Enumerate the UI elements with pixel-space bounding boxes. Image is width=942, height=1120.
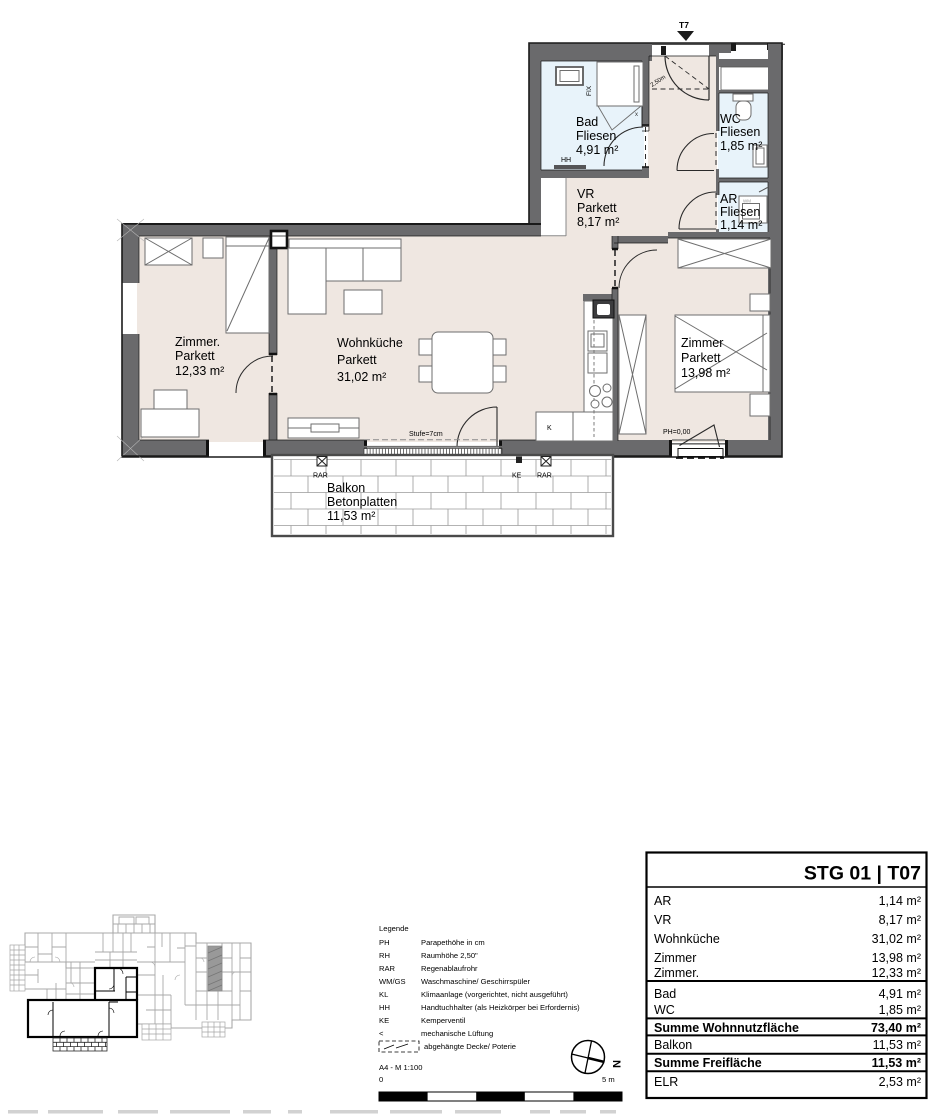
svg-text:1,14 m²: 1,14 m²	[720, 218, 762, 232]
svg-text:Summe Wohnnutzfläche: Summe Wohnnutzfläche	[654, 1021, 799, 1035]
svg-text:Balkon: Balkon	[654, 1038, 692, 1052]
svg-text:WC: WC	[720, 112, 741, 126]
svg-text:Fliesen: Fliesen	[720, 125, 760, 139]
svg-text:RAR: RAR	[537, 473, 552, 480]
svg-text:Wohnküche: Wohnküche	[337, 336, 403, 350]
svg-text:Raumhöhe 2,50": Raumhöhe 2,50"	[421, 951, 478, 960]
svg-text:Zimmer.: Zimmer.	[654, 966, 699, 980]
svg-text:Balkon: Balkon	[327, 481, 365, 495]
svg-text:RAR: RAR	[379, 964, 396, 973]
svg-text:Parkett: Parkett	[175, 349, 215, 363]
svg-text:Parkett: Parkett	[681, 351, 721, 365]
svg-text:73,40 m²: 73,40 m²	[871, 1021, 921, 1035]
svg-text:<: <	[379, 1029, 384, 1038]
svg-text:13,98 m²: 13,98 m²	[872, 951, 921, 965]
svg-text:Parkett: Parkett	[337, 353, 377, 367]
svg-text:RH: RH	[379, 951, 390, 960]
svg-text:N: N	[610, 1060, 622, 1068]
svg-text:KE: KE	[379, 1016, 389, 1025]
svg-text:WM: WM	[743, 199, 751, 204]
svg-text:PH: PH	[379, 938, 390, 947]
svg-text:AR: AR	[654, 894, 671, 908]
svg-text:Stufe=7cm: Stufe=7cm	[409, 431, 443, 438]
svg-text:AR: AR	[720, 192, 737, 206]
svg-text:Parkett: Parkett	[577, 201, 617, 215]
svg-text:8,17 m²: 8,17 m²	[577, 215, 619, 229]
svg-text:13,98 m²: 13,98 m²	[681, 366, 730, 380]
svg-text:Bad: Bad	[576, 115, 598, 129]
svg-text:0: 0	[379, 1075, 383, 1084]
svg-text:11,53 m²: 11,53 m²	[327, 509, 375, 523]
svg-text:FIX: FIX	[586, 85, 593, 96]
svg-text:RAR: RAR	[313, 473, 328, 480]
svg-text:KL: KL	[379, 990, 388, 999]
svg-text:Betonplatten: Betonplatten	[327, 495, 397, 509]
svg-text:Bad: Bad	[654, 987, 676, 1001]
svg-text:Fliesen: Fliesen	[576, 129, 616, 143]
svg-text:Zimmer: Zimmer	[681, 336, 723, 350]
svg-text:VR: VR	[577, 187, 594, 201]
svg-text:12,33 m²: 12,33 m²	[872, 966, 921, 980]
svg-text:Summe Freifläche: Summe Freifläche	[654, 1056, 762, 1070]
svg-text:Handtuchhalter (als Heizkörper: Handtuchhalter (als Heizkörper bei Erfor…	[421, 1003, 580, 1012]
svg-text:11,53 m²: 11,53 m²	[873, 1038, 921, 1052]
svg-text:Waschmaschine/ Geschirrspüler: Waschmaschine/ Geschirrspüler	[421, 977, 530, 986]
svg-text:HH: HH	[561, 157, 571, 164]
svg-text:WM/GS: WM/GS	[379, 977, 406, 986]
svg-text:mechanische Lüftung: mechanische Lüftung	[421, 1029, 493, 1038]
svg-text:Fliesen: Fliesen	[720, 205, 760, 219]
svg-text:WC: WC	[654, 1003, 675, 1017]
svg-text:Legende: Legende	[379, 924, 409, 933]
svg-text:Zimmer: Zimmer	[654, 951, 696, 965]
svg-text:31,02 m²: 31,02 m²	[337, 370, 386, 384]
svg-text:1,85 m²: 1,85 m²	[879, 1003, 921, 1017]
svg-text:Regenablaufrohr: Regenablaufrohr	[421, 964, 478, 973]
svg-text:abgehängte Decke/ Poterie: abgehängte Decke/ Poterie	[424, 1042, 516, 1051]
svg-text:Wohnküche: Wohnküche	[654, 932, 720, 946]
svg-text:1,14 m²: 1,14 m²	[879, 894, 921, 908]
svg-text:11,53 m²: 11,53 m²	[872, 1056, 921, 1070]
svg-text:Klimaanlage (vorgerichtet, nic: Klimaanlage (vorgerichtet, nicht ausgefü…	[421, 990, 568, 999]
svg-text:A4 - M 1:100: A4 - M 1:100	[379, 1063, 422, 1072]
svg-text:Kemperventil: Kemperventil	[421, 1016, 466, 1025]
svg-text:KE: KE	[512, 473, 522, 480]
svg-text:K: K	[547, 425, 552, 432]
svg-text:ELR: ELR	[654, 1075, 678, 1089]
svg-text:12,33 m²: 12,33 m²	[175, 364, 224, 378]
svg-text:4,91 m²: 4,91 m²	[879, 987, 921, 1001]
svg-text:2,53 m²: 2,53 m²	[879, 1075, 921, 1089]
svg-text:x: x	[635, 112, 638, 118]
svg-text:HH: HH	[379, 1003, 390, 1012]
svg-text:T7: T7	[679, 20, 689, 30]
svg-text:Parapethöhe in cm: Parapethöhe in cm	[421, 938, 485, 947]
svg-text:8,17 m²: 8,17 m²	[879, 913, 921, 927]
svg-text:4,91 m²: 4,91 m²	[576, 143, 618, 157]
svg-text:31,02 m²: 31,02 m²	[872, 932, 921, 946]
svg-text:5 m: 5 m	[602, 1075, 615, 1084]
svg-text:VR: VR	[654, 913, 671, 927]
svg-text:PH=0,00: PH=0,00	[663, 429, 691, 436]
svg-text:1,85 m²: 1,85 m²	[720, 139, 762, 153]
svg-text:Zimmer.: Zimmer.	[175, 335, 220, 349]
svg-text:STG 01 | T07: STG 01 | T07	[804, 863, 921, 885]
